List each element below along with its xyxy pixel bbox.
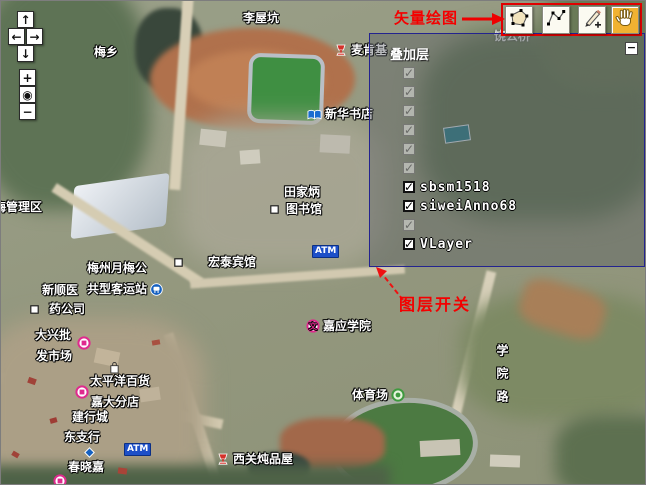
bus-icon [150,283,163,296]
map-label-text: 梅管理区 [0,201,42,214]
polyline-icon [545,7,567,33]
layer-panel-title: 叠加层 [390,44,429,63]
layer-row: ✓ [403,161,415,175]
map-label-text: 宏泰宾馆 [208,256,256,269]
label-chunxiaojia: 春晓嘉 [68,461,104,474]
label-atm-mid: ATM [312,245,339,258]
map-label-text: 建行城 [72,411,108,424]
layer-switcher-panel: 叠加层 − ✓✓✓✓✓✓✓sbsm1518✓siweiAnno68✓✓VLaye… [369,33,645,267]
label-daxing-market-line1: 大兴批 [35,329,71,342]
hand-icon [614,7,636,33]
layer-row-sbsm1518: ✓sbsm1518 [403,180,491,194]
layer-row: ✓ [403,66,415,80]
pacific-dept-poi [75,385,89,399]
draw-point-tool[interactable] [578,6,606,34]
map-label-text: 新华书店 [325,108,373,121]
zoom-world-button[interactable]: ◉ [19,86,36,103]
label-pacific-dept-line2: 嘉大分店 [91,396,139,409]
label-ccb-branch-line1: 建行城 [72,411,108,424]
label-xinhua-bookstore: 新华书店 [307,108,373,121]
map-label-text: 新顺医 [42,284,78,297]
label-xueyuan-road: 学院路 [495,344,508,413]
marker-square-icon [270,205,279,214]
label-mei-district: 梅管理区 [0,201,42,214]
shop-icon [75,385,89,399]
layer-row: ✓ [403,123,415,137]
layer-checkbox[interactable]: ✓ [403,181,415,193]
blue-diamond-poi [83,446,96,459]
layer-checkbox[interactable]: ✓ [403,219,415,231]
vector-draw-annotation: 矢量绘图 [394,7,458,28]
map-label-text: 图书馆 [286,203,322,216]
layer-row: ✓ [403,85,415,99]
map-application: 李屋坑梅乡麦肯基新华书店田家炳图书馆宏泰宾馆梅管理区梅州月梅公共型客运站新顺医药… [0,0,646,485]
map-label-text: 发市场 [36,350,72,363]
layer-label: VLayer [420,237,473,252]
layer-checkbox[interactable]: ✓ [403,200,415,212]
label-bus-station-line1: 梅州月梅公 [87,262,147,275]
map-label-text: 共型客运站 [87,283,147,296]
bag-icon [109,361,120,374]
shop-icon [77,336,91,350]
label-tianjiabing-line2: 图书馆 [270,203,322,216]
label-daxing-market-line2: 发市场 [36,350,72,363]
label-tianjiabing-line1: 田家炳 [284,186,320,199]
pan-up-button[interactable]: ↑ [17,11,34,28]
zoom-out-button[interactable]: − [19,103,36,120]
polygon-icon [508,7,530,33]
label-meixiang: 梅乡 [94,46,118,59]
map-label-text: 体育场 [352,389,388,402]
map-label-text: 东支行 [64,431,100,444]
marker-square-icon [174,258,183,267]
svg-text:文: 文 [309,321,318,331]
layer-row: ✓ [403,218,415,232]
label-ccb-branch-line2: 东支行 [64,431,100,444]
layer-checkbox[interactable]: ✓ [403,105,415,117]
label-bus-station-line2: 共型客运站 [87,283,163,296]
label-xiguan-restaurant: 西关炖品屋 [216,452,293,466]
layer-label: sbsm1518 [420,180,491,195]
map-label-text: 西关炖品屋 [233,453,293,466]
layer-switch-annotation: 图层开关 [399,291,471,315]
layer-row: ✓ [403,142,415,156]
sport-icon [391,388,405,402]
shop-icon [53,474,67,485]
pan-down-button[interactable]: ↓ [17,45,34,62]
map-label-text: ATM [127,445,148,454]
layer-checkbox[interactable]: ✓ [403,162,415,174]
map-label-text: 梅州月梅公 [87,262,147,275]
draw-line-tool[interactable] [542,6,570,34]
label-liwukeng: 李屋坑 [243,12,279,25]
map-label-text: 嘉大分店 [91,396,139,409]
map-label-text: ATM [315,247,336,256]
map-label-text: 春晓嘉 [68,461,104,474]
food-icon [216,452,230,466]
label-jiaying-university: 文嘉应学院 [306,319,371,333]
school-icon: 文 [306,319,320,333]
pencil-icon [581,7,603,33]
marker-square-icon [30,305,39,314]
map-label-text: 田家炳 [284,186,320,199]
label-stadium: 体育场 [352,388,405,402]
layer-checkbox[interactable]: ✓ [403,124,415,136]
pan-left-button[interactable]: ← [8,28,25,45]
label-atm-south: ATM [124,443,151,456]
layer-checkbox[interactable]: ✓ [403,86,415,98]
layer-label: siweiAnno68 [420,199,517,214]
chunxiaojia-poi [53,474,67,485]
minimize-panel-button[interactable]: − [625,42,638,55]
map-label-text: 大兴批 [35,329,71,342]
map-label-text: 学院路 [495,344,508,413]
shopping-bag-poi [109,361,120,374]
label-hongtai-hotel: 宏泰宾馆 [174,256,256,269]
book-icon [307,109,322,121]
pan-right-button[interactable]: → [26,28,43,45]
map-label-text: 嘉应学院 [323,320,371,333]
layer-row-VLayer: ✓VLayer [403,237,473,251]
diamond-icon [83,446,96,459]
layer-checkbox[interactable]: ✓ [403,238,415,250]
layer-checkbox[interactable]: ✓ [403,143,415,155]
label-pharmacy-line1: 新顺医 [42,284,78,297]
label-pharmacy-line2: 药公司 [30,303,85,316]
map-label-text: 药公司 [49,303,85,316]
draw-polygon-tool[interactable] [505,6,533,34]
map-label-text: 太平洋百货 [90,375,150,388]
pan-hand-tool[interactable] [611,6,639,34]
daxing-market-poi [77,336,91,350]
map-label-text: 李屋坑 [243,12,279,25]
layer-checkbox[interactable]: ✓ [403,67,415,79]
map-label-text: 梅乡 [94,46,118,59]
layer-row-siweiAnno68: ✓siweiAnno68 [403,199,517,213]
label-pacific-dept-line1: 太平洋百货 [90,375,150,388]
zoom-in-button[interactable]: + [19,69,36,86]
layer-row: ✓ [403,104,415,118]
food-icon [334,43,348,57]
